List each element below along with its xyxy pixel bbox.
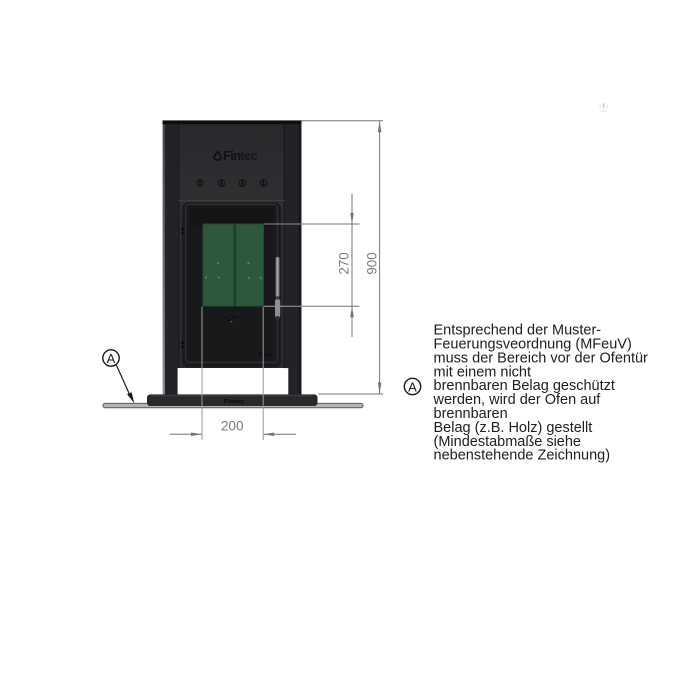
- svg-text:270: 270: [336, 252, 351, 274]
- svg-text:TmII: TmII: [258, 352, 272, 359]
- svg-text:Fin: Fin: [223, 149, 241, 163]
- svg-text:A: A: [107, 351, 116, 366]
- svg-text:nebenstehende Zeichnung): nebenstehende Zeichnung): [434, 448, 611, 464]
- svg-text:A: A: [408, 379, 417, 394]
- svg-text:200: 200: [221, 419, 244, 434]
- svg-text:tec: tec: [240, 149, 257, 163]
- svg-text:Fintec: Fintec: [224, 399, 244, 406]
- svg-text:900: 900: [365, 252, 380, 274]
